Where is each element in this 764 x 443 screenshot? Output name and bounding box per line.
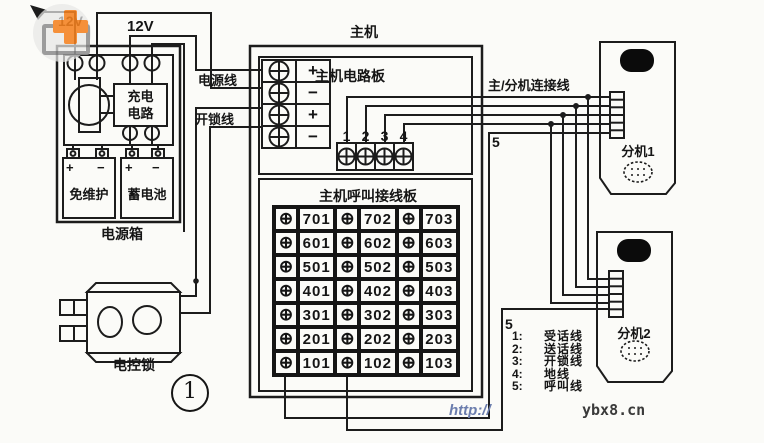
plug-number-1: 1 (339, 128, 354, 144)
call-terminal-cell: ⊕403 (397, 279, 458, 303)
handset2-label: 分机2 (608, 323, 660, 342)
screw-terminal-icon: ⊕ (397, 351, 421, 375)
plus-icon (53, 20, 88, 33)
call-terminal-cell: ⊕501 (274, 255, 335, 279)
room-number: 701 (298, 207, 335, 231)
screw-terminal-icon: ⊕ (335, 351, 359, 375)
call-terminal-cell: ⊕602 (335, 231, 396, 255)
call-terminal-cell: ⊕603 (397, 231, 458, 255)
call-terminal-cell: ⊕303 (397, 303, 458, 327)
screw-terminal-icon: ⊕ (274, 327, 298, 351)
room-number: 403 (421, 279, 458, 303)
call-terminal-cell: ⊕402 (335, 279, 396, 303)
input-polarity-4: − (302, 127, 324, 147)
screw-terminal-icon: ⊕ (274, 255, 298, 279)
room-number: 301 (298, 303, 335, 327)
lock-body (60, 283, 180, 362)
watermark-url-http: http:// (449, 402, 491, 419)
plug-number-2: 2 (358, 128, 373, 144)
screw-terminal-icon: ⊕ (335, 231, 359, 255)
call-terminal-cell: ⊕102 (335, 351, 396, 375)
room-number: 602 (359, 231, 396, 255)
screw-terminal-icon: ⊕ (397, 327, 421, 351)
call-terminal-cell: ⊕601 (274, 231, 335, 255)
battery2-label: 蓄电池 (121, 184, 173, 203)
call-terminal-cell: ⊕201 (274, 327, 335, 351)
call-terminal-cell: ⊕302 (335, 303, 396, 327)
screw-terminal-icon: ⊕ (274, 231, 298, 255)
battery1-plus: + (66, 160, 74, 175)
charge-output-terminals (123, 126, 159, 140)
screw-terminal-icon: ⊕ (274, 351, 298, 375)
call-terminal-cell: ⊕101 (274, 351, 335, 375)
screw-terminal-icon: ⊕ (274, 279, 298, 303)
input-polarity-2: − (302, 83, 324, 103)
legend-label: 开锁线 (544, 355, 583, 368)
battery2-minus: − (152, 160, 160, 175)
room-number: 702 (359, 207, 396, 231)
call-terminal-cell: ⊕103 (397, 351, 458, 375)
connect-line-label: 主/分机连接线 (488, 75, 570, 94)
screw-terminal-icon: ⊕ (335, 207, 359, 231)
legend-row: 1:受话线 (512, 330, 583, 343)
room-number: 302 (359, 303, 396, 327)
supply-12v-label: 12V (127, 18, 154, 35)
call-board-grid: ⊕701⊕702⊕703⊕601⊕602⊕603⊕501⊕502⊕503⊕401… (272, 205, 460, 377)
main-unit-label: 主机 (336, 22, 392, 42)
battery-wires (73, 140, 158, 150)
screw-terminal-icon: ⊕ (397, 255, 421, 279)
handset1-body (600, 42, 675, 194)
battery1-label: 免维护 (63, 184, 115, 203)
call-terminal-cell: ⊕203 (397, 327, 458, 351)
battery-terminals (67, 149, 164, 158)
screw-terminal-icon: ⊕ (335, 255, 359, 279)
room-number: 303 (421, 303, 458, 327)
call-board-label: 主机呼叫接线板 (310, 186, 426, 206)
room-number: 402 (359, 279, 396, 303)
screw-terminal-icon: ⊕ (335, 279, 359, 303)
wire-legend: 1:受话线2:送话线3:开锁线4:地线5:呼叫线 (512, 330, 583, 393)
battery2-plus: + (125, 160, 133, 175)
room-number: 501 (298, 255, 335, 279)
screw-terminal-icon: ⊕ (397, 231, 421, 255)
plug-number-3: 3 (377, 128, 392, 144)
legend-row: 3:开锁线 (512, 355, 583, 368)
wire5-top-label: 5 (492, 134, 500, 150)
room-number: 401 (298, 279, 335, 303)
legend-label: 呼叫线 (544, 380, 583, 393)
input-polarity-3: + (302, 105, 324, 125)
call-terminal-cell: ⊕202 (335, 327, 396, 351)
call-terminal-cell: ⊕401 (274, 279, 335, 303)
power-line-label: 电源线 (198, 70, 237, 89)
screw-terminal-icon: ⊕ (335, 327, 359, 351)
room-number: 201 (298, 327, 335, 351)
call-terminal-cell: ⊕503 (397, 255, 458, 279)
power-box-terminals (68, 56, 160, 85)
room-number: 603 (421, 231, 458, 255)
room-number: 101 (298, 351, 335, 375)
legend-number: 1: (512, 330, 532, 343)
room-number: 203 (421, 327, 458, 351)
legend-label: 受话线 (544, 330, 583, 343)
figure-number: 1 (171, 374, 209, 412)
power-box-label: 电源箱 (94, 224, 150, 244)
room-number: 601 (298, 231, 335, 255)
call-terminal-cell: ⊕703 (397, 207, 458, 231)
lock-label: 电控锁 (106, 355, 162, 375)
screw-terminal-icon: ⊕ (274, 303, 298, 327)
room-number: 703 (421, 207, 458, 231)
room-number: 102 (359, 351, 396, 375)
call-terminal-cell: ⊕701 (274, 207, 335, 231)
screw-terminal-icon: ⊕ (397, 279, 421, 303)
battery1-minus: − (97, 160, 105, 175)
room-number: 502 (359, 255, 396, 279)
room-number: 503 (421, 255, 458, 279)
transformer-symbol (69, 78, 114, 132)
wiring-diagram-page: 12V 12V 充电 电路 + − + − 免维护 蓄电池 电源箱 电源线 开锁… (0, 0, 764, 443)
legend-number: 5: (512, 380, 532, 393)
unlock-line-label: 开锁线 (195, 109, 234, 128)
room-number: 202 (359, 327, 396, 351)
screw-terminal-icon: ⊕ (335, 303, 359, 327)
call-terminal-cell: ⊕502 (335, 255, 396, 279)
screw-terminal-icon: ⊕ (397, 207, 421, 231)
legend-row: 5:呼叫线 (512, 380, 583, 393)
charge-circuit-label: 充电 电路 (114, 88, 167, 122)
watermark-url-domain: ybx8.cn (582, 401, 645, 419)
call-terminal-cell: ⊕301 (274, 303, 335, 327)
legend-number: 3: (512, 355, 532, 368)
screw-terminal-icon: ⊕ (274, 207, 298, 231)
call-terminal-cell: ⊕702 (335, 207, 396, 231)
plug-number-4: 4 (396, 128, 411, 144)
plug-terminal-block (337, 143, 413, 170)
room-number: 103 (421, 351, 458, 375)
screw-terminal-icon: ⊕ (397, 303, 421, 327)
handset2-body (597, 232, 672, 382)
input-polarity-1: + (302, 61, 324, 81)
handset1-label: 分机1 (612, 141, 664, 160)
